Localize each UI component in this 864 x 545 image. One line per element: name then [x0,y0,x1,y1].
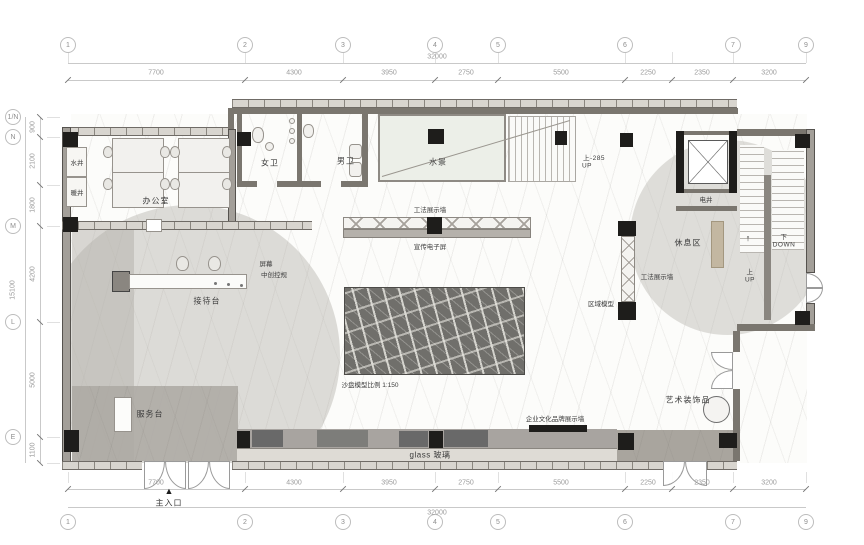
elevator-car [688,140,728,184]
desk-divider [178,172,230,173]
dim-line [68,80,806,81]
exterior-door-leaf [806,273,823,288]
reception-desk [129,274,247,289]
column [64,430,79,452]
office-door [146,219,162,232]
dim-label-bottom: 2250 [640,480,656,487]
grid-bubble-bottom: 2 [237,514,253,530]
display-cabinet [252,430,283,447]
dim-label-left: 4200 [30,266,37,282]
dim-label-bottom: 4300 [286,480,302,487]
top-wall [230,108,738,114]
toilet-fixture [303,124,314,138]
label-service-desk: 服务台 [137,409,164,420]
entrance-door-leaf [188,461,209,489]
grid-bubble-bottom: 7 [725,514,741,530]
grid-stub [343,52,344,63]
grid-bubble-top: 2 [237,37,253,53]
label-water-feature: 水景 [429,157,447,168]
pool-block [428,129,444,144]
display-cabinet [317,430,368,447]
column [618,221,636,236]
office-window-band [62,127,232,136]
label-wc-women: 女卫 [261,158,279,169]
label-screen-line1: 屏幕 [260,258,273,268]
label-main-entrance: 主入口 [156,498,183,509]
grid-stub [498,52,499,63]
label-region-model: 区域模型 [588,298,614,308]
floor-service-area [72,386,238,461]
office-chair [103,146,113,158]
label-up285-line2: UP [582,163,592,170]
grid-stub [733,52,734,63]
office-chair [170,178,180,190]
grid-stub [47,185,60,186]
rear-door-leaf [663,461,685,486]
dim-total-bottom: 32000 [427,510,446,517]
urinal-fixture [289,128,295,134]
label-stair-up-line2: UP [745,277,755,284]
right-wall-upper-a [806,129,815,273]
office-chair [160,146,170,158]
grid-bubble-top: 5 [490,37,506,53]
grid-stub [47,137,60,138]
grid-stub [68,472,69,483]
grid-stub [47,226,60,227]
label-up285-line1: 上-285 [583,152,605,162]
entrance-arrow-icon: ▲ [165,486,174,496]
grid-stub [47,117,60,118]
grid-stub [672,52,673,63]
dim-label-bottom: 2750 [458,480,474,487]
grid-stub [733,472,734,483]
wc-bottom-wall-b [277,181,321,187]
column [555,131,567,145]
grid-stub [343,472,344,483]
label-heating-shaft: 暖井 [71,187,84,197]
bottom-window-band-a [62,461,142,470]
entrance-door-leaf [165,461,186,489]
office-chair [222,178,232,190]
grid-stub [625,52,626,63]
reception-chair [208,256,221,271]
dim-label-left: 5000 [30,372,37,388]
exterior-door-leaf [806,288,823,303]
grid-stub [435,472,436,483]
column [63,217,78,232]
bottom-window-band-b [232,461,663,470]
label-glass-wall: glass 玻璃 [410,450,451,461]
column [618,433,634,450]
grid-bubble-top: 1 [60,37,76,53]
dim-label-top: 2250 [640,70,656,77]
rest-area-bench [711,221,724,268]
grid-bubble-left: 1/N [5,109,21,125]
desk-item [227,283,230,286]
wc-left-wall [237,112,242,182]
sink-fixture [265,142,274,151]
dim-label-bottom: 7700 [148,480,164,487]
elevator-top-wall [676,131,737,135]
dim-label-bottom: 5500 [553,480,569,487]
grid-bubble-top: 6 [617,37,633,53]
desk-item [214,282,217,285]
column [620,133,633,147]
label-brand-wall: 企业文化品牌展示墙 [526,413,585,423]
wc-bottom-wall-a [237,181,257,187]
dim-total-top: 32000 [427,54,446,61]
urinal-fixture [289,118,295,124]
dim-label-top: 7700 [148,70,164,77]
label-promo-screen: 宣传电子屏 [414,241,447,251]
grid-bubble-bottom: 1 [60,514,76,530]
dim-label-bottom: 3200 [761,480,777,487]
grid-bubble-bottom: 5 [490,514,506,530]
wc-right-wall [362,112,368,182]
column [63,132,78,147]
right-wall-lower-a [733,331,740,352]
grid-bubble-bottom: 3 [335,514,351,530]
elevator-wall-right [729,131,737,193]
column [237,132,251,146]
column [429,431,443,448]
label-art-decor: 艺术装饰品 [666,395,711,406]
dim-line [25,117,26,463]
grid-bubble-top: 4 [427,37,443,53]
label-method-wall-top: 工法展示墙 [414,204,447,214]
service-desk [114,397,132,432]
dim-tick [803,486,809,492]
grid-bubble-top: 9 [798,37,814,53]
grid-stub [47,437,60,438]
dim-label-top: 3200 [761,70,777,77]
stair-divider-wall [764,175,771,320]
grid-stub [625,472,626,483]
dim-label-top: 3950 [381,70,397,77]
stair-up-arrow-icon: ↑ [746,233,751,243]
label-elevator-shaft: 电井 [700,194,713,204]
brand-wall-bar [529,425,587,432]
dim-label-left: 1800 [30,197,37,213]
top-stair [508,116,576,182]
display-cabinet [444,430,488,447]
right-wall-lower-b [733,389,740,461]
dim-tick [803,77,809,83]
display-wall-column [427,217,442,234]
dim-line [68,489,806,490]
dim-label-top: 5500 [553,70,569,77]
step-wall [228,108,234,129]
wc-bottom-wall-c [341,181,368,187]
sand-table-model [344,287,525,375]
reception-block [112,271,130,292]
dim-line [40,117,41,463]
method-display-wall-right [621,236,635,302]
dim-total-left: 15100 [10,280,17,299]
grid-stub [47,322,60,323]
stair-run-left [740,145,764,253]
floor-plan-canvas: 1234567977004300395027505500225023503200… [0,0,864,545]
office-chair [222,146,232,158]
grid-bubble-left: M [5,218,21,234]
office-bottom-partition [62,221,312,230]
column [618,302,636,320]
label-stair-up-line1: 上 [747,266,754,276]
toilet-fixture [252,127,264,143]
grid-bubble-left: L [5,314,21,330]
label-stair-down-line2: DOWN [773,242,796,249]
grid-bubble-bottom: 6 [617,514,633,530]
entrance-door-leaf [209,461,230,489]
grid-bubble-top: 7 [725,37,741,53]
dim-label-top: 2350 [694,70,710,77]
grid-stub [806,52,807,63]
desk-item [240,284,243,287]
wc-divider-wall [297,112,302,182]
label-stair-down-line1: 下 [781,231,788,241]
dim-label-bottom: 2350 [694,480,710,487]
label-water-shaft: 水井 [71,157,84,167]
shaft-room-divider [676,189,737,193]
grid-stub [68,52,69,63]
column [795,134,810,148]
office-chair [103,178,113,190]
grid-stub [47,463,60,464]
dim-label-top: 2750 [458,70,474,77]
dim-label-left: 2100 [30,153,37,169]
grid-bubble-bottom: 9 [798,514,814,530]
label-office: 办公室 [143,196,170,207]
shaft-room-bottom [676,206,737,211]
dim-label-left: 900 [30,121,37,133]
office-chair [160,178,170,190]
label-wc-men: 男卫 [337,156,355,167]
grid-bubble-left: N [5,129,21,145]
desk-divider [112,172,164,173]
stair-run-right [772,150,804,250]
label-sand-table: 沙盘模型比例 1:150 [341,379,398,389]
column [719,433,737,448]
dim-label-left: 1100 [30,442,37,457]
urinal-fixture [289,138,295,144]
label-rest-area: 休息区 [675,238,702,249]
label-reception-desk: 接待台 [194,296,221,307]
grid-stub [245,52,246,63]
label-method-wall-right: 工法展示墙 [641,271,674,281]
dim-label-top: 4300 [286,70,302,77]
reception-chair [176,256,189,271]
grid-bubble-left: E [5,429,21,445]
display-cabinet [399,431,428,447]
top-parapet-band [232,99,737,108]
grid-stub [498,472,499,483]
grid-stub [245,472,246,483]
grid-bubble-top: 3 [335,37,351,53]
bottom-window-band-c [707,461,737,470]
column [237,431,250,448]
column [795,311,810,325]
dim-line [68,63,806,64]
dim-label-bottom: 3950 [381,480,397,487]
stairwell-bottom-wall [737,324,815,331]
grid-stub [806,472,807,483]
elevator-wall-left [676,131,684,193]
label-screen-line2: 中创控规 [261,269,287,279]
office-chair [170,146,180,158]
